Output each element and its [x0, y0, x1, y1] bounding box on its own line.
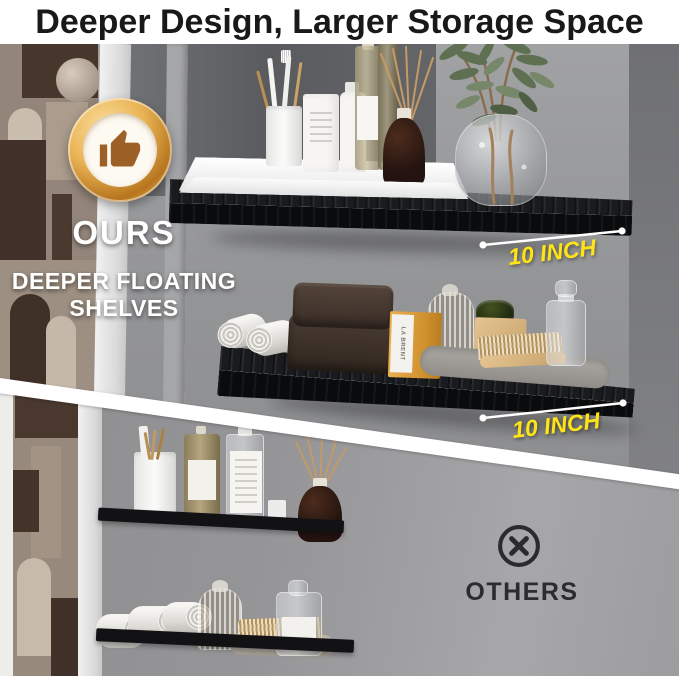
soap-box-label: LA BRENT	[390, 314, 414, 373]
glass-vase	[455, 114, 547, 206]
art-shape	[0, 140, 46, 262]
glass-stopper	[288, 580, 308, 596]
toothbrush-cup	[266, 106, 302, 166]
soap-box-label-text: LA BRENT	[398, 326, 405, 360]
others-label: OTHERS	[422, 578, 622, 607]
folded-towel	[292, 282, 393, 329]
vase-branches	[456, 115, 548, 207]
others-glass-bottle	[226, 434, 264, 522]
bottle-label	[188, 460, 216, 500]
diffuser-bottle	[383, 118, 425, 188]
product-image: LA BRENT	[0, 0, 679, 676]
badge-inner	[83, 113, 157, 187]
page-title: Deeper Design, Larger Storage Space	[35, 3, 643, 42]
bottle-stopper	[196, 426, 206, 434]
wall-pilaster	[163, 44, 188, 408]
wall-corner-band	[629, 44, 679, 494]
amber-bottle	[184, 434, 220, 520]
others-toothbrush-cup	[134, 452, 176, 516]
art-shape	[51, 598, 80, 676]
title-bar: Deeper Design, Larger Storage Space	[0, 0, 679, 44]
label-text-lines	[235, 459, 257, 503]
wall-art-poster-lower	[0, 390, 80, 676]
bottle-label	[230, 451, 262, 513]
art-shape	[17, 558, 51, 656]
thumbs-up-badge	[68, 98, 172, 202]
art-shape	[56, 58, 98, 102]
others-diffuser-bottle	[298, 486, 342, 542]
jar-lid-knob	[212, 580, 228, 592]
glass-bottle	[546, 300, 586, 366]
glass-stopper	[555, 280, 577, 297]
label-text-lines	[310, 112, 332, 146]
thumbs-up-icon	[98, 128, 142, 172]
wall-art-poster	[0, 44, 98, 396]
art-shape	[46, 316, 76, 396]
jar-lid-knob	[442, 284, 458, 296]
art-shape	[13, 470, 39, 532]
circle-x-icon	[496, 523, 542, 569]
cosmetic-box	[303, 94, 339, 172]
